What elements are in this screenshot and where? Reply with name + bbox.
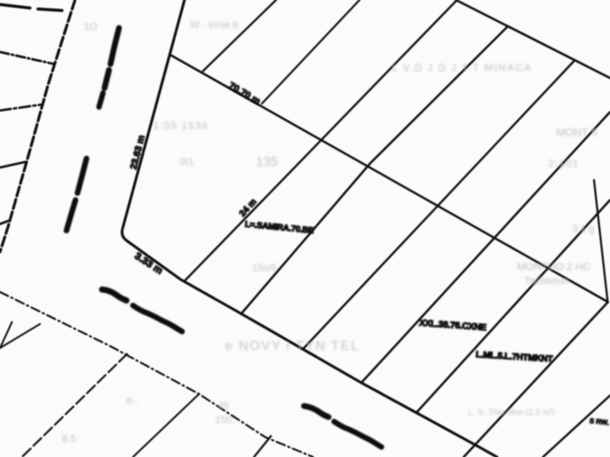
- svg-text:150,: 150,: [215, 415, 234, 426]
- svg-text:e NOVY i TYN TEL: e NOVY i TYN TEL: [225, 338, 360, 353]
- svg-text:135: 135: [256, 154, 278, 169]
- svg-text:0t1: 0t1: [180, 157, 194, 168]
- svg-text:L V.D J D J T.T MINACA: L V.D J D J T.T MINACA: [392, 63, 532, 74]
- svg-text:2:101: 2:101: [548, 158, 579, 170]
- svg-text:MONT 5: MONT 5: [556, 127, 597, 139]
- svg-text:1O: 1O: [84, 22, 98, 33]
- svg-text:Tachtelun: Tachtelun: [524, 275, 569, 287]
- svg-text:MONTUO 2 HC: MONTUO 2 HC: [517, 261, 591, 273]
- svg-text:15s/6: 15s/6: [252, 263, 277, 274]
- svg-text:¡.. S. Thia tithe (2.2 m²): ¡.. S. Thia tithe (2.2 m²): [468, 407, 555, 417]
- svg-text:W · In!se b: W · In!se b: [190, 20, 239, 31]
- svg-text:3:1 g: 3:1 g: [572, 224, 594, 235]
- svg-text:45: 45: [218, 401, 230, 412]
- svg-text:th..: th..: [126, 396, 139, 406]
- svg-text:1:05 1536: 1:05 1536: [153, 120, 209, 132]
- svg-text:8.5: 8.5: [62, 434, 76, 445]
